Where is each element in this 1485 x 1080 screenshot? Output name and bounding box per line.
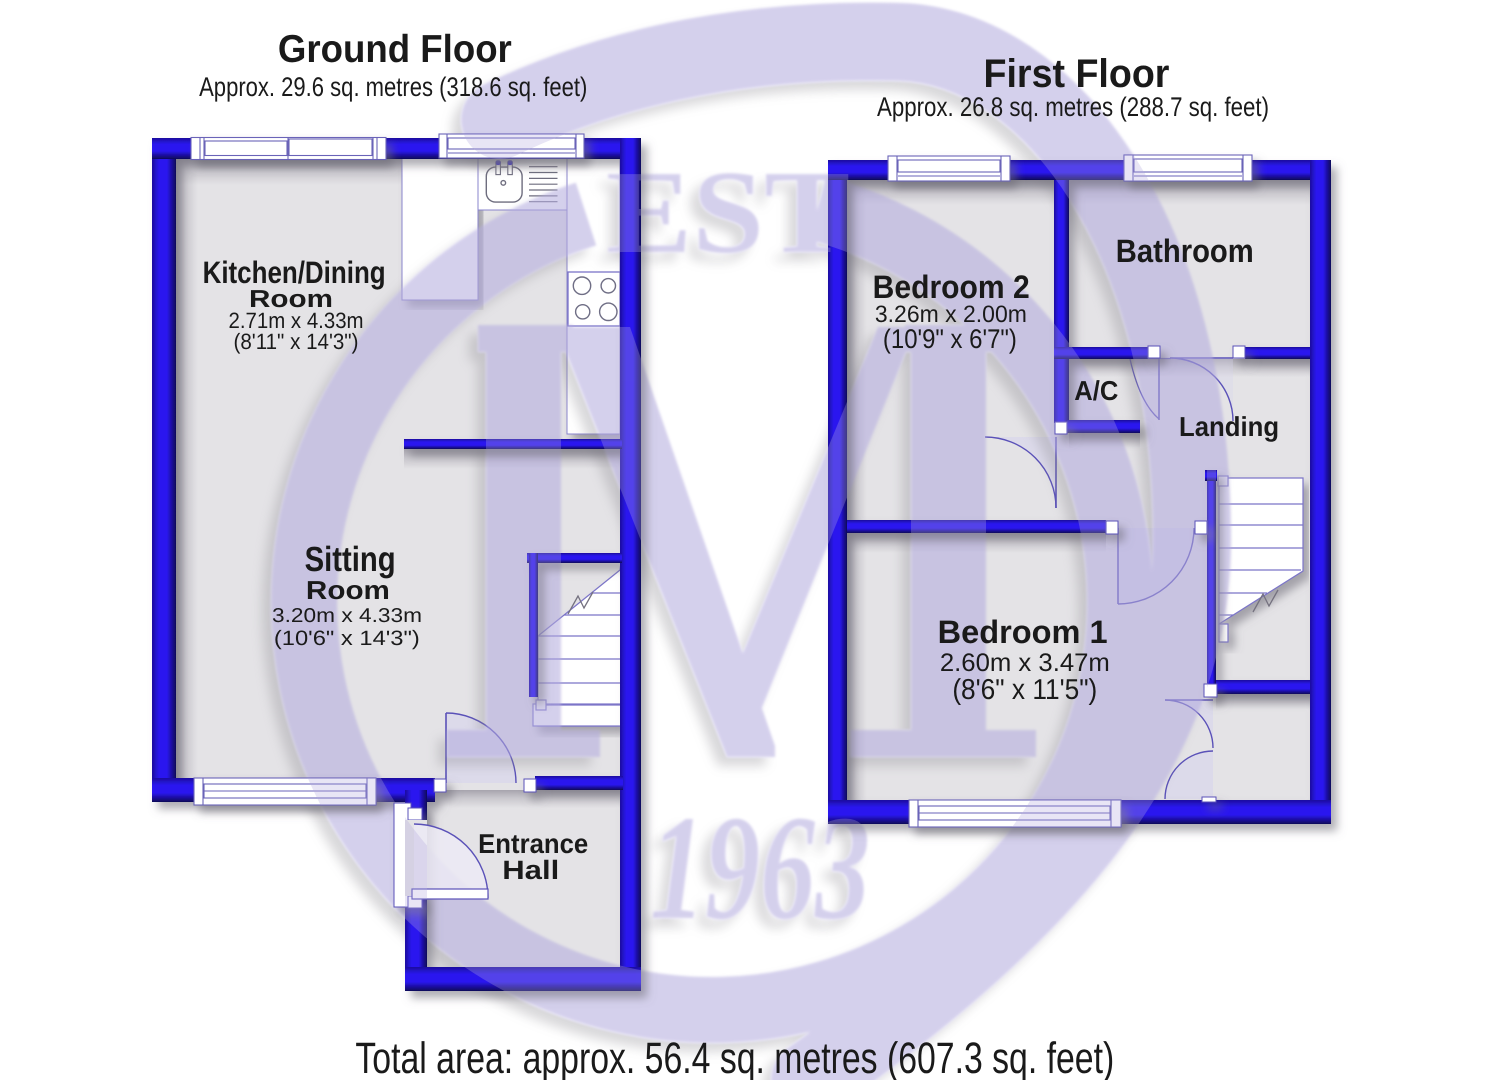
svg-text:(8'11" x 14'3"): (8'11" x 14'3") xyxy=(233,329,358,354)
svg-text:First Floor: First Floor xyxy=(984,52,1170,96)
svg-text:Approx. 26.8 sq. metres (288.7: Approx. 26.8 sq. metres (288.7 sq. feet) xyxy=(877,92,1269,122)
svg-text:(10'9" x 6'7"): (10'9" x 6'7") xyxy=(883,324,1017,354)
svg-text:A/C: A/C xyxy=(1074,375,1118,406)
svg-text:(10'6" x 14'3"): (10'6" x 14'3") xyxy=(274,627,420,650)
svg-text:Room: Room xyxy=(306,575,390,605)
svg-text:(8'6" x 11'5"): (8'6" x 11'5") xyxy=(952,674,1097,706)
svg-text:Total area: approx. 56.4 sq. m: Total area: approx. 56.4 sq. metres (607… xyxy=(355,1034,1114,1080)
svg-text:Bedroom 1: Bedroom 1 xyxy=(938,614,1108,650)
svg-text:Kitchen/Dining: Kitchen/Dining xyxy=(203,255,386,290)
svg-text:Approx. 29.6 sq. metres (318.6: Approx. 29.6 sq. metres (318.6 sq. feet) xyxy=(199,72,587,102)
svg-text:Landing: Landing xyxy=(1179,411,1279,442)
svg-text:2.60m x 3.47m: 2.60m x 3.47m xyxy=(940,649,1110,677)
svg-text:Sitting: Sitting xyxy=(305,540,396,579)
svg-text:Hall: Hall xyxy=(502,855,559,885)
svg-text:3.20m x 4.33m: 3.20m x 4.33m xyxy=(272,605,422,627)
svg-text:Bedroom 2: Bedroom 2 xyxy=(873,269,1030,305)
svg-text:Ground Floor: Ground Floor xyxy=(278,28,512,71)
svg-text:Bathroom: Bathroom xyxy=(1116,233,1254,269)
